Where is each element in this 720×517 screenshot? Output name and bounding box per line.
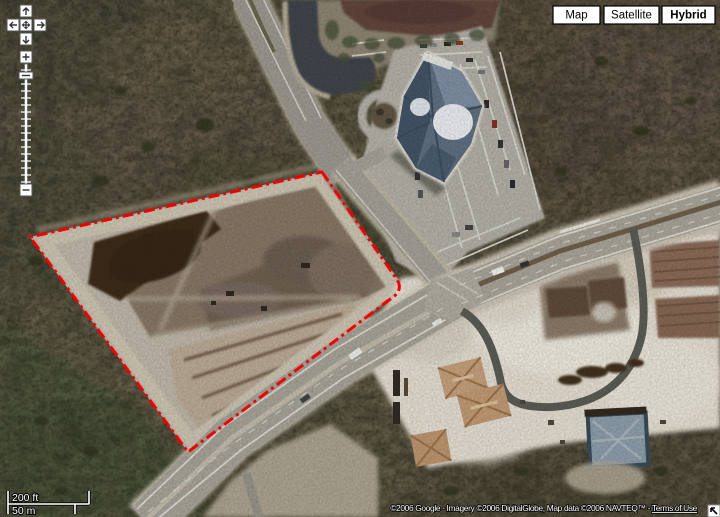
svg-text:Satellite: Satellite <box>611 10 652 22</box>
svg-text:©2006 Google - Imagery ©2006 D: ©2006 Google - Imagery ©2006 DigitalGlob… <box>390 503 697 513</box>
svg-text:Hybrid: Hybrid <box>670 10 706 22</box>
svg-text:200 ft: 200 ft <box>12 492 38 504</box>
svg-text:Map: Map <box>565 10 587 22</box>
svg-text:50 m: 50 m <box>12 505 36 517</box>
